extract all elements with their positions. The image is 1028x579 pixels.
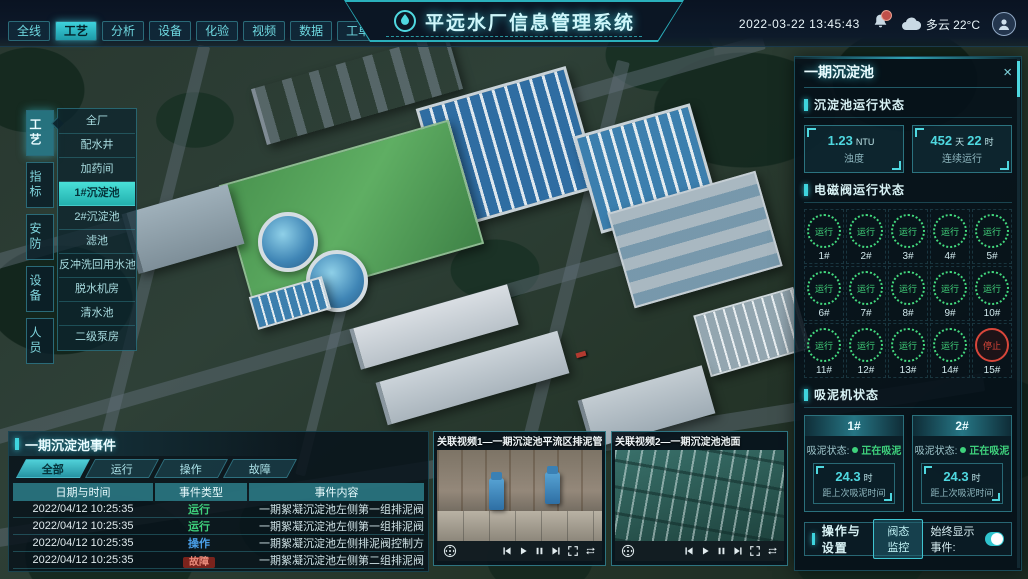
nav-tab-label: 全线: [17, 24, 41, 38]
header-right-hud: 2022-03-22 13:45:43 多云 22°C: [739, 12, 1016, 36]
running-status-stats: 1.23 NTU 浊度 452 天 22 时 连续运行: [804, 125, 1012, 173]
valve-ring-icon: 运行: [933, 214, 967, 248]
event-content: 一期絮凝沉淀池左侧第一组排泥阀正在排泥: [245, 501, 424, 517]
nav-tab-label: 工艺: [64, 24, 88, 38]
event-type-badge: 运行: [188, 521, 210, 533]
user-avatar[interactable]: [992, 12, 1016, 36]
ptz-dpad-icon[interactable]: [621, 544, 635, 558]
machine-unit: 时: [972, 471, 981, 484]
stat-unit: 天: [955, 135, 964, 148]
stat-unit-2: 时: [985, 135, 994, 148]
stat-value: 1.23: [828, 133, 853, 148]
play-icon[interactable]: [519, 546, 528, 556]
next-icon[interactable]: [551, 546, 561, 556]
section-title: 沉淀池运行状态: [814, 96, 905, 113]
ptz-dpad-icon[interactable]: [443, 544, 457, 558]
valve-id: 2#: [860, 251, 871, 262]
event-type: 故障: [153, 553, 245, 568]
events-title: 一期沉淀池事件: [25, 435, 116, 454]
next-icon[interactable]: [733, 546, 743, 556]
valve-id: 11#: [816, 365, 832, 376]
valve-id: 12#: [858, 365, 875, 376]
valve-status: 运行: [857, 339, 875, 352]
valve-monitor-button[interactable]: 阀态监控: [873, 519, 923, 559]
operations-title: 操作与设置: [822, 522, 867, 556]
video-panel-1: 关联视频1—一期沉淀池平流区排泥管廊: [433, 431, 606, 566]
valve-id: 7#: [860, 308, 871, 319]
video-controls: [615, 541, 784, 561]
panel-title: 一期沉淀池: [804, 62, 874, 82]
valve-status: 运行: [983, 282, 1001, 295]
valve-ring-icon: 运行: [807, 271, 841, 305]
process-menu-item[interactable]: 1#沉淀池: [59, 182, 135, 206]
process-menu-item[interactable]: 二级泵房: [59, 326, 135, 349]
machine-id: 2#: [913, 416, 1011, 436]
valve-status: 运行: [815, 339, 833, 352]
valve-id: 6#: [818, 308, 829, 319]
nav-tab[interactable]: 分析: [102, 21, 144, 41]
valve-grid: 运行 1# 运行 2# 运行 3# 运行 4# 运行: [804, 209, 1012, 378]
status-dot-icon: [960, 447, 966, 453]
events-table-body: 2022/04/12 10:25:35 运行 一期絮凝沉淀池左侧第一组排泥阀正在…: [13, 501, 424, 569]
valve-ring-icon: 停止: [975, 328, 1009, 362]
sidebar-tab[interactable]: 指标: [26, 162, 54, 208]
pause-icon[interactable]: [717, 546, 726, 556]
scrollbar-thumb[interactable]: [1017, 61, 1020, 97]
mud-suction-machines: 1# 吸泥状态: 正在吸泥 24.3 时 距上次吸泥时间 2# 吸泥状态:: [804, 415, 1012, 512]
video-scene-platform: [437, 511, 602, 541]
nav-tab[interactable]: 工艺: [55, 21, 97, 41]
event-content: 一期絮凝沉淀池左侧排泥阀控制方式切换为手动: [245, 535, 424, 551]
valve-id: 15#: [984, 365, 1001, 376]
valve-status: 停止: [983, 339, 1001, 352]
notification-bell-icon[interactable]: [872, 13, 889, 35]
machine-note: 距上次吸泥时间: [930, 486, 993, 499]
close-icon[interactable]: ×: [1003, 65, 1012, 80]
valve-ring-icon: 运行: [891, 328, 925, 362]
section-accent-bar: [15, 438, 19, 450]
events-header: 一期沉淀池事件: [9, 432, 428, 456]
machine-status: 正在吸泥: [861, 442, 901, 457]
stat-card: 1.23 NTU 浊度: [804, 125, 904, 173]
section-accent-bar: [804, 389, 808, 401]
panel-scrollbar[interactable]: [1017, 59, 1020, 568]
event-type: 运行: [153, 518, 245, 534]
machine-value: 24.3: [835, 469, 860, 484]
event-type-badge: 运行: [188, 504, 210, 516]
valve-ring-icon: 运行: [849, 214, 883, 248]
valve-id: 3#: [902, 251, 913, 262]
events-table: 日期与时间事件类型事件内容 2022/04/12 10:25:35 运行 一期絮…: [13, 483, 424, 569]
section-accent-bar: [804, 184, 808, 196]
valve-status: 运行: [941, 339, 959, 352]
previous-icon[interactable]: [502, 546, 512, 556]
event-time: 2022/04/12 10:25:35: [13, 554, 153, 566]
video-feed-pump-gallery[interactable]: [437, 450, 602, 541]
top-header: 全线 工艺 分析 设备 化验 视频 数据 工单 系统: [0, 0, 1028, 47]
valve-status: 运行: [941, 282, 959, 295]
stat-value-2: 22: [967, 133, 981, 148]
pause-icon[interactable]: [535, 546, 544, 556]
valve-ring-icon: 运行: [807, 214, 841, 248]
section-accent-bar: [812, 533, 815, 545]
valve-ring-icon: 运行: [807, 328, 841, 362]
loop-icon[interactable]: [767, 546, 778, 556]
valve-status: 运行: [857, 282, 875, 295]
valve-cell[interactable]: 运行 7#: [846, 266, 886, 321]
fullscreen-icon[interactable]: [568, 546, 578, 556]
nav-tab-label: 化验: [205, 24, 229, 38]
map-round-pond: [258, 212, 318, 272]
sidebar-tab-strip: 工艺指标安防设备人员: [26, 110, 54, 364]
sidebar-tab[interactable]: 安防: [26, 214, 54, 260]
events-panel: 一期沉淀池事件 全部 运行 操作 故障 日期与时间事件类型事件内容 2022/0…: [8, 431, 429, 572]
valve-id: 5#: [986, 251, 997, 262]
valve-ring-icon: 运行: [975, 271, 1009, 305]
process-menu-item[interactable]: 全厂: [59, 110, 135, 134]
panel-header: 一期沉淀池 ×: [804, 57, 1012, 88]
video-scene-pump: [489, 478, 504, 510]
process-menu-item[interactable]: 配水井: [59, 134, 135, 158]
machine-status: 正在吸泥: [969, 442, 1009, 457]
section-valves: 电磁阀运行状态: [804, 181, 1012, 203]
valve-status: 运行: [983, 225, 1001, 238]
event-row[interactable]: 2022/04/12 10:25:35 故障 一期絮凝沉淀池左侧第二组排泥阀启动…: [13, 552, 424, 569]
events-filter-tab-label: 全部: [42, 461, 64, 477]
operations-bar: 操作与设置 阀态监控 始终显示事件:: [804, 522, 1012, 556]
process-menu-item[interactable]: 加药间: [59, 158, 135, 182]
valve-id: 4#: [944, 251, 955, 262]
nav-tab[interactable]: 全线: [8, 21, 50, 41]
nav-tab[interactable]: 化验: [196, 21, 238, 41]
video-title: 关联视频1—一期沉淀池平流区排泥管廊: [437, 435, 602, 450]
events-column-header: 事件类型: [155, 483, 247, 501]
section-title: 吸泥机状态: [814, 386, 879, 403]
valve-cell[interactable]: 运行 12#: [846, 323, 886, 378]
machine-card: 2# 吸泥状态: 正在吸泥 24.3 时 距上次吸泥时间: [912, 415, 1012, 512]
events-column-header: 事件内容: [249, 483, 424, 501]
valve-status: 运行: [899, 282, 917, 295]
valve-id: 13#: [900, 365, 917, 376]
video-panel-2: 关联视频2—一期沉淀池池面: [611, 431, 788, 566]
nav-tab[interactable]: 设备: [149, 21, 191, 41]
toggle-knob: [991, 533, 1003, 545]
stat-value: 452: [930, 133, 952, 148]
status-dot-icon: [852, 447, 858, 453]
valve-ring-icon: 运行: [975, 214, 1009, 248]
events-filter-tabs: 全部 运行 操作 故障: [21, 459, 428, 478]
stat-unit: NTU: [856, 137, 875, 147]
event-row[interactable]: 2022/04/12 10:25:35 运行 一期絮凝沉淀池左侧第一组排泥阀正在…: [13, 501, 424, 518]
playback-controls: [502, 546, 596, 556]
event-time: 2022/04/12 10:25:35: [13, 520, 153, 532]
stat-label: 浊度: [844, 150, 864, 165]
section-mud-suction: 吸泥机状态: [804, 386, 1012, 408]
valve-ring-icon: 运行: [849, 271, 883, 305]
valve-cell[interactable]: 运行 3#: [888, 209, 928, 264]
event-type-badge: 操作: [188, 538, 210, 550]
nav-tab-label: 数据: [299, 24, 323, 38]
valve-cell[interactable]: 运行 8#: [888, 266, 928, 321]
valve-cell[interactable]: 运行 11#: [804, 323, 844, 378]
video-title: 关联视频2—一期沉淀池池面: [615, 435, 784, 450]
event-type: 操作: [153, 535, 245, 551]
events-filter-tab-label: 操作: [180, 461, 202, 477]
valve-cell[interactable]: 运行 4#: [930, 209, 970, 264]
events-column-header: 日期与时间: [13, 483, 153, 501]
event-time: 2022/04/12 10:25:35: [13, 537, 153, 549]
nav-tab-label: 设备: [158, 24, 182, 38]
always-show-events-toggle[interactable]: [985, 532, 1004, 546]
section-title: 电磁阀运行状态: [814, 181, 905, 198]
valve-status: 运行: [857, 225, 875, 238]
nav-tab[interactable]: 数据: [290, 21, 332, 41]
event-content: 一期絮凝沉淀池左侧第二组排泥阀启动失败: [245, 552, 424, 568]
always-show-events-label: 始终显示事件:: [930, 523, 977, 555]
valve-cell[interactable]: 运行 10#: [972, 266, 1012, 321]
weather-text: 多云 22°C: [926, 16, 980, 33]
valve-status: 运行: [899, 225, 917, 238]
valve-cell[interactable]: 运行 2#: [846, 209, 886, 264]
previous-icon[interactable]: [684, 546, 694, 556]
video-scene-pump: [545, 472, 560, 504]
section-accent-bar: [804, 99, 808, 111]
valve-cell[interactable]: 运行 1#: [804, 209, 844, 264]
datetime-display: 2022-03-22 13:45:43: [739, 17, 860, 31]
stat-label: 连续运行: [942, 150, 982, 165]
process-menu-item[interactable]: 脱水机房: [59, 278, 135, 302]
valve-status: 运行: [899, 339, 917, 352]
water-drop-logo-icon: [393, 9, 417, 33]
valve-ring-icon: 运行: [933, 328, 967, 362]
sedimentation-detail-panel: 一期沉淀池 × 沉淀池运行状态 1.23 NTU 浊度 452 天: [794, 56, 1022, 571]
events-filter-tab[interactable]: 故障: [223, 459, 297, 478]
machine-value-box: 24.3 时 距上次吸泥时间: [813, 463, 895, 504]
event-row[interactable]: 2022/04/12 10:25:35 运行 一期絮凝沉淀池左侧第一组排泥阀正在…: [13, 518, 424, 535]
machine-unit: 时: [864, 471, 873, 484]
weather-widget: 多云 22°C: [901, 16, 980, 33]
valve-id: 8#: [902, 308, 913, 319]
valve-ring-icon: 运行: [933, 271, 967, 305]
events-filter-tab[interactable]: 操作: [154, 459, 228, 478]
event-row[interactable]: 2022/04/12 10:25:35 操作 一期絮凝沉淀池左侧排泥阀控制方式切…: [13, 535, 424, 552]
valve-cell[interactable]: 运行 13#: [888, 323, 928, 378]
stat-card: 452 天 22 时 连续运行: [912, 125, 1012, 173]
machine-value-box: 24.3 时 距上次吸泥时间: [921, 463, 1003, 504]
app-title-frame: 平远水厂信息管理系统: [344, 0, 684, 42]
valve-cell[interactable]: 运行 9#: [930, 266, 970, 321]
events-filter-tab[interactable]: 运行: [85, 459, 159, 478]
events-filter-tab[interactable]: 全部: [16, 459, 90, 478]
process-menu-item[interactable]: 2#沉淀池: [59, 206, 135, 230]
event-type-badge: 故障: [183, 557, 215, 568]
valve-ring-icon: 运行: [891, 271, 925, 305]
process-menu-item[interactable]: 清水池: [59, 302, 135, 326]
machine-status-row: 吸泥状态: 正在吸泥: [913, 442, 1011, 457]
process-menu: 全厂配水井加药间1#沉淀池2#沉淀池滤池反冲洗回用水池脱水机房清水池二级泵房: [57, 108, 137, 351]
section-running-status: 沉淀池运行状态: [804, 96, 1012, 118]
valve-status: 运行: [815, 282, 833, 295]
sidebar-tab[interactable]: 工艺: [26, 110, 54, 156]
video-controls: [437, 541, 602, 561]
nav-tab-label: 视频: [252, 24, 276, 38]
machine-value: 24.3: [943, 469, 968, 484]
events-filter-tab-label: 故障: [249, 461, 271, 477]
notification-badge: [881, 10, 892, 21]
process-menu-item[interactable]: 反冲洗回用水池: [59, 254, 135, 278]
events-table-header: 日期与时间事件类型事件内容: [13, 483, 424, 501]
valve-cell[interactable]: 停止 15#: [972, 323, 1012, 378]
playback-controls: [684, 546, 778, 556]
valve-ring-icon: 运行: [849, 328, 883, 362]
nav-tab-label: 分析: [111, 24, 135, 38]
machine-status-label: 吸泥状态:: [807, 442, 850, 457]
sidebar-tab[interactable]: 设备: [26, 266, 54, 312]
valve-cell[interactable]: 运行 6#: [804, 266, 844, 321]
events-filter-tab-label: 运行: [111, 461, 133, 477]
event-time: 2022/04/12 10:25:35: [13, 503, 153, 515]
machine-status-label: 吸泥状态:: [915, 442, 958, 457]
machine-card: 1# 吸泥状态: 正在吸泥 24.3 时 距上次吸泥时间: [804, 415, 904, 512]
process-menu-item[interactable]: 滤池: [59, 230, 135, 254]
loop-icon[interactable]: [585, 546, 596, 556]
machine-id: 1#: [805, 416, 903, 436]
valve-id: 9#: [944, 308, 955, 319]
fullscreen-icon[interactable]: [750, 546, 760, 556]
event-content: 一期絮凝沉淀池左侧第一组排泥阀正在排泥: [245, 518, 424, 534]
valve-ring-icon: 运行: [891, 214, 925, 248]
valve-id: 14#: [942, 365, 959, 376]
valve-status: 运行: [941, 225, 959, 238]
event-type: 运行: [153, 501, 245, 517]
valve-id: 10#: [984, 308, 1001, 319]
valve-id: 1#: [818, 251, 829, 262]
machine-status-row: 吸泥状态: 正在吸泥: [805, 442, 903, 457]
cloud-icon: [901, 17, 921, 31]
dashboard-root: { "header": { "nav": [ {"label": "全线"}, …: [0, 0, 1028, 579]
app-title: 平远水厂信息管理系统: [425, 8, 635, 35]
play-icon[interactable]: [701, 546, 710, 556]
machine-note: 距上次吸泥时间: [822, 486, 885, 499]
video-feed-pool-surface[interactable]: [615, 450, 784, 541]
valve-cell[interactable]: 运行 5#: [972, 209, 1012, 264]
valve-status: 运行: [815, 225, 833, 238]
sidebar-tab[interactable]: 人员: [26, 318, 54, 364]
valve-cell[interactable]: 运行 14#: [930, 323, 970, 378]
nav-tab[interactable]: 视频: [243, 21, 285, 41]
